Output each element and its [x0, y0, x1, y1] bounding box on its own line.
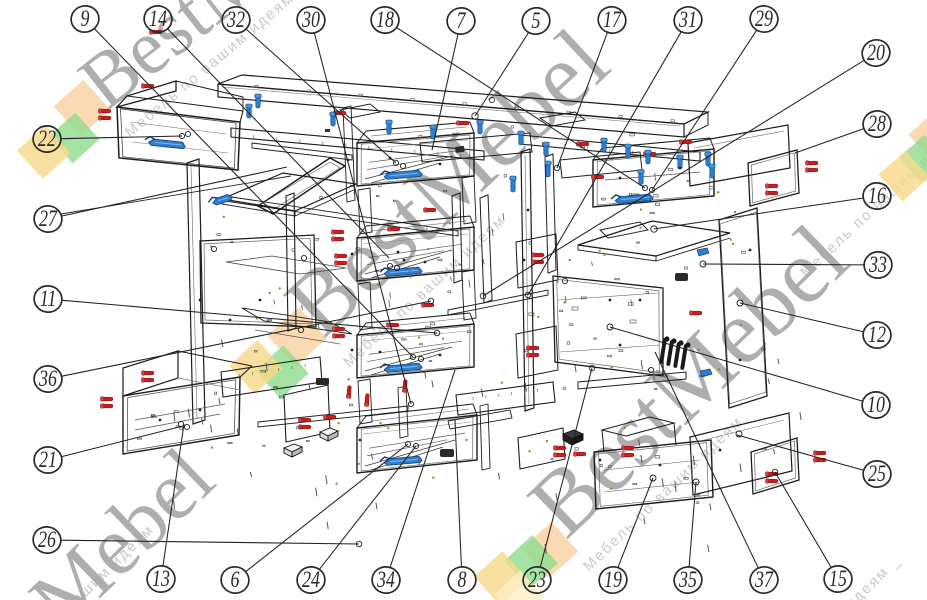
svg-text:27: 27	[39, 207, 58, 232]
svg-text:33: 33	[868, 253, 887, 278]
svg-text:13: 13	[152, 567, 170, 592]
svg-text:35: 35	[678, 568, 697, 593]
svg-text:11: 11	[40, 287, 57, 312]
svg-text:7: 7	[457, 9, 467, 34]
svg-text:37: 37	[754, 568, 774, 593]
svg-text:34: 34	[376, 568, 395, 593]
svg-text:32: 32	[226, 8, 245, 33]
svg-text:9: 9	[81, 7, 90, 32]
svg-text:29: 29	[755, 7, 773, 32]
svg-text:21: 21	[39, 448, 57, 473]
svg-text:36: 36	[38, 367, 57, 392]
svg-text:25: 25	[868, 462, 886, 487]
svg-text:19: 19	[604, 568, 622, 593]
svg-text:17: 17	[603, 8, 622, 33]
svg-text:31: 31	[678, 8, 697, 33]
svg-text:6: 6	[231, 568, 241, 593]
svg-text:12: 12	[868, 323, 886, 348]
svg-text:28: 28	[868, 112, 887, 137]
svg-text:5: 5	[532, 9, 541, 34]
svg-text:15: 15	[829, 567, 847, 592]
svg-text:24: 24	[302, 568, 320, 593]
svg-text:20: 20	[867, 41, 886, 66]
svg-text:16: 16	[868, 184, 887, 209]
svg-text:23: 23	[528, 568, 546, 593]
svg-text:22: 22	[38, 127, 56, 152]
svg-text:10: 10	[867, 393, 886, 418]
svg-text:14: 14	[149, 7, 167, 32]
svg-text:18: 18	[376, 8, 395, 33]
svg-text:30: 30	[301, 8, 320, 33]
svg-text:26: 26	[38, 528, 57, 553]
svg-text:8: 8	[458, 568, 468, 593]
